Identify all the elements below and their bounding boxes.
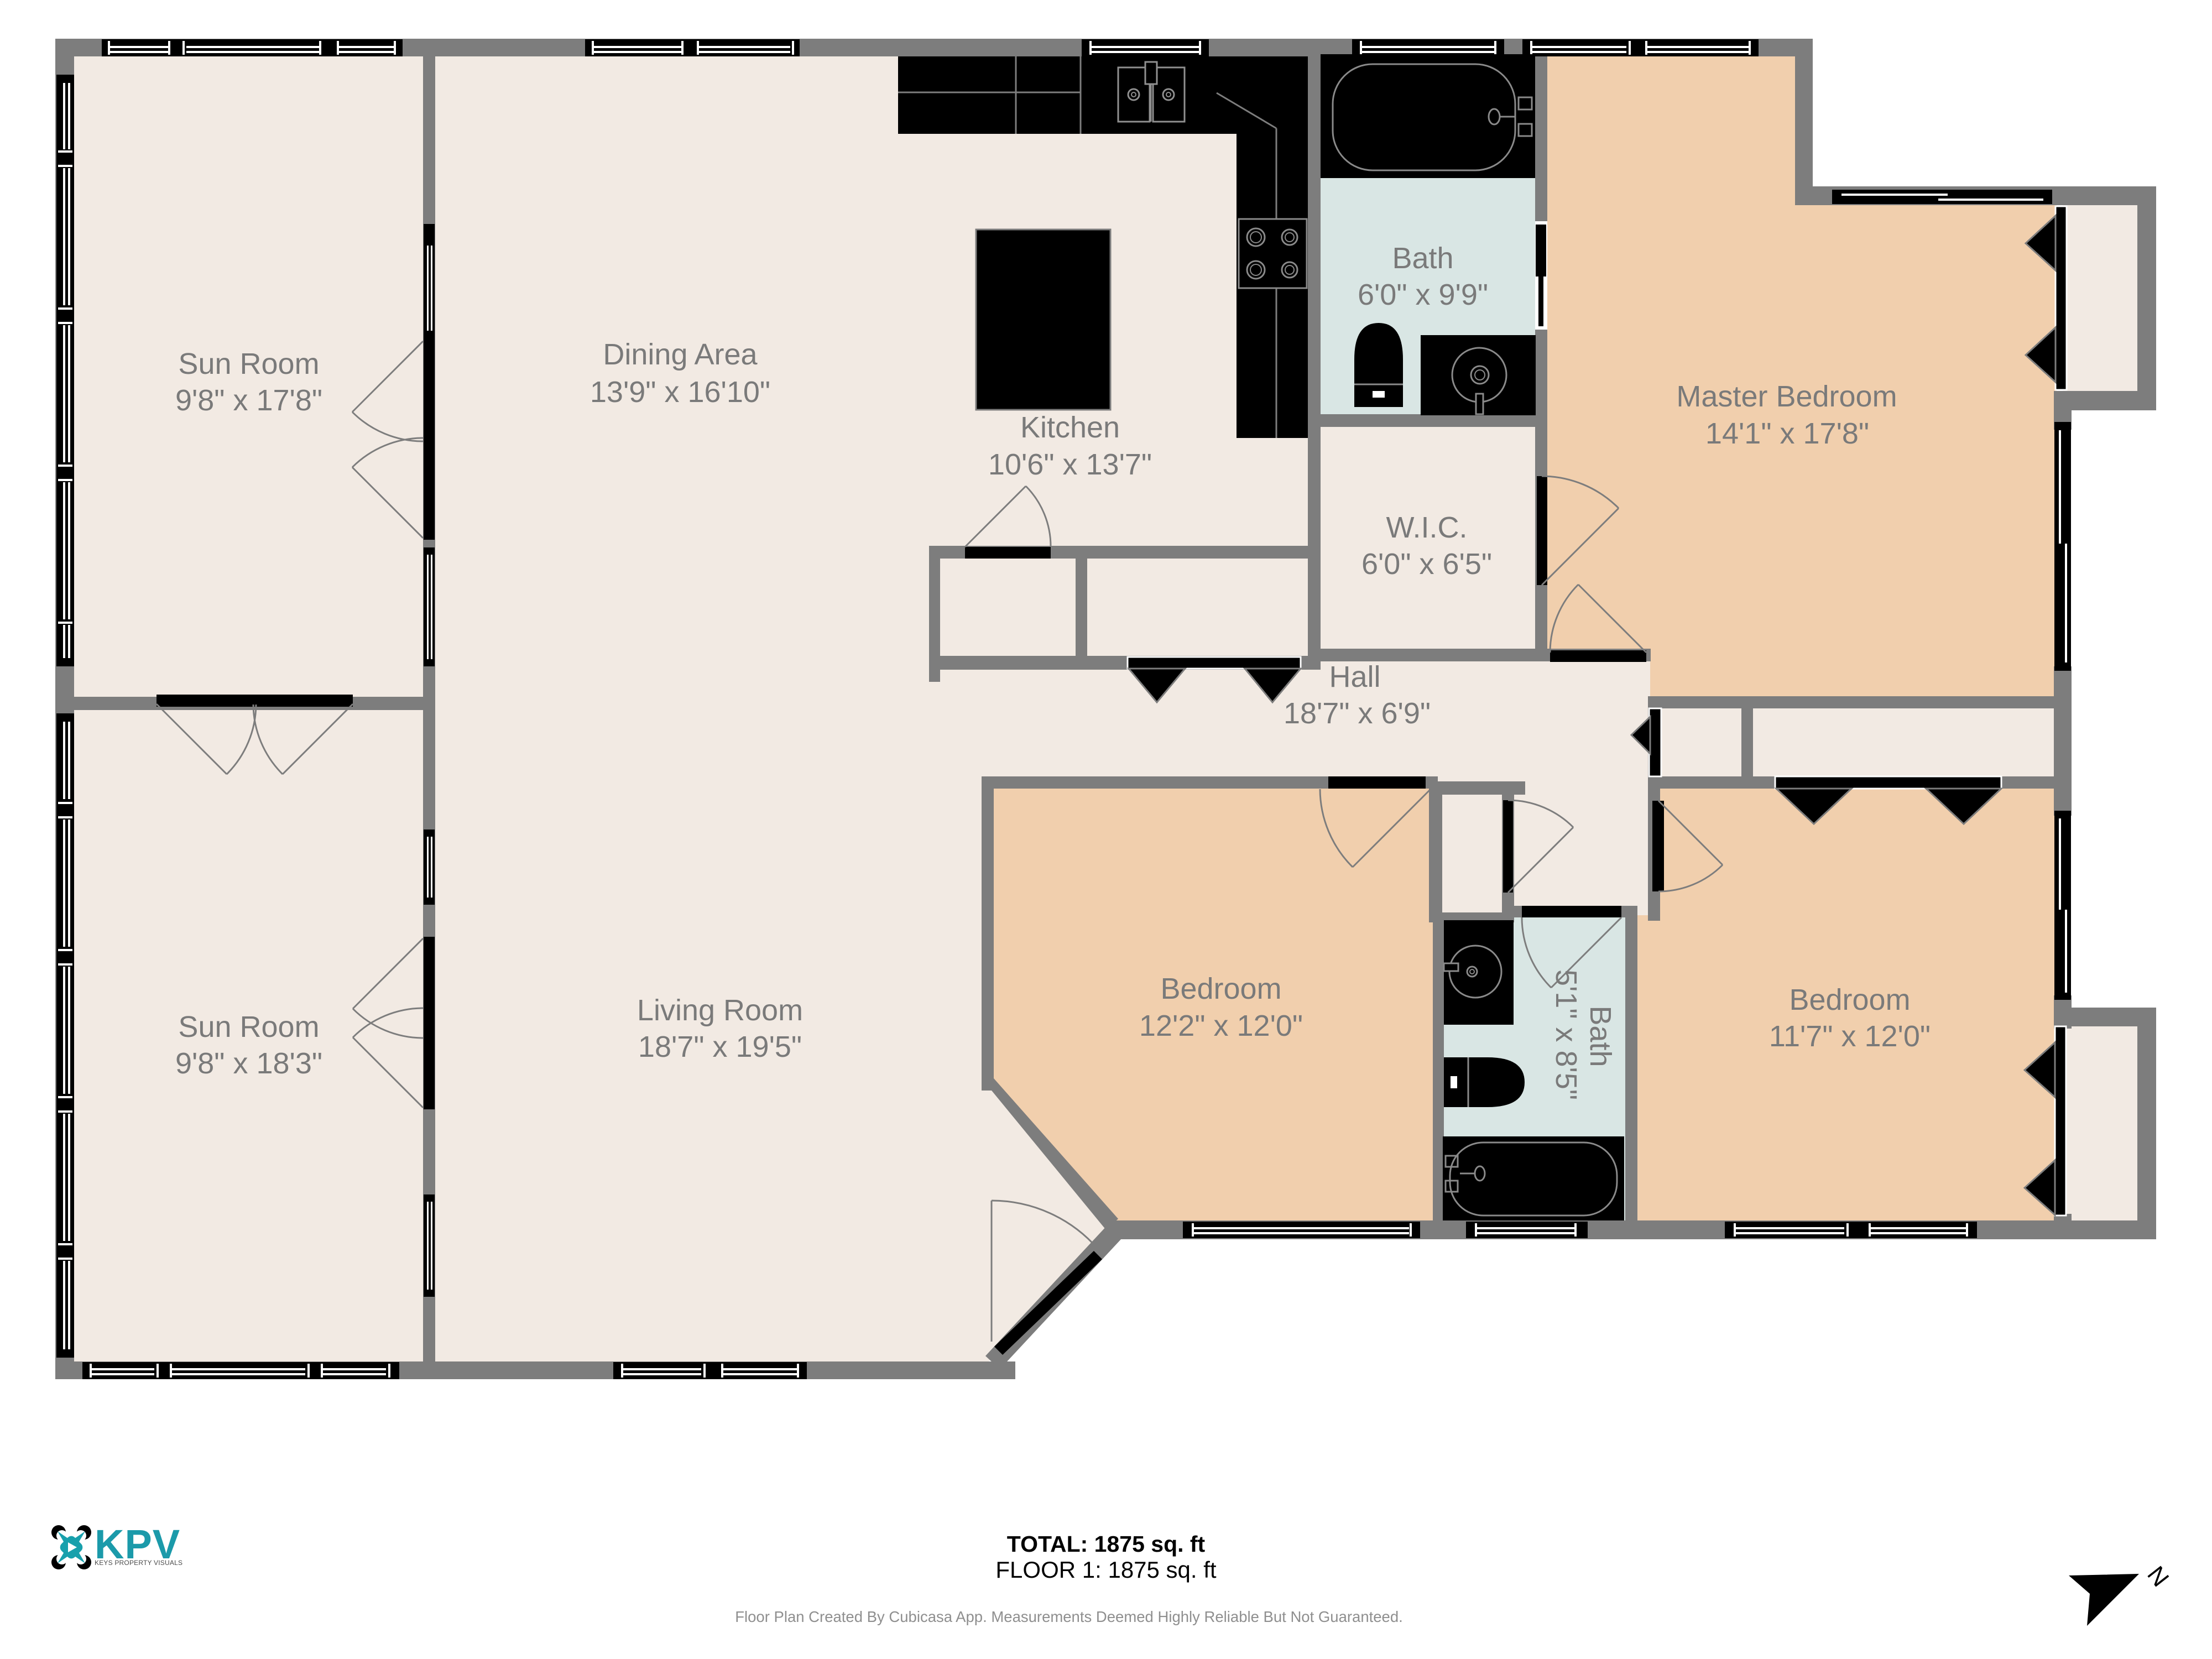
svg-text:Hall: Hall (1329, 660, 1380, 693)
svg-text:14'1" x 17'8": 14'1" x 17'8" (1705, 417, 1869, 450)
svg-text:Floor Plan Created By Cubicasa: Floor Plan Created By Cubicasa App. Meas… (735, 1608, 1403, 1625)
svg-text:12'2" x 12'0": 12'2" x 12'0" (1139, 1009, 1303, 1042)
svg-text:Dining Area: Dining Area (603, 338, 758, 371)
svg-text:Master Bedroom: Master Bedroom (1676, 380, 1897, 413)
svg-text:Bedroom: Bedroom (1160, 972, 1281, 1005)
svg-text:5'1" x 8'5": 5'1" x 8'5" (1550, 969, 1583, 1100)
svg-text:9'8" x 18'3": 9'8" x 18'3" (175, 1047, 322, 1080)
svg-text:Kitchen: Kitchen (1020, 411, 1120, 444)
svg-text:9'8" x 17'8": 9'8" x 17'8" (175, 384, 322, 417)
svg-text:W.I.C.: W.I.C. (1386, 511, 1468, 544)
svg-text:Bedroom: Bedroom (1789, 983, 1910, 1016)
svg-text:6'0" x 6'5": 6'0" x 6'5" (1361, 547, 1492, 581)
svg-text:FLOOR 1: 1875 sq. ft: FLOOR 1: 1875 sq. ft (995, 1557, 1217, 1583)
svg-text:KEYS PROPERTY VISUALS: KEYS PROPERTY VISUALS (95, 1559, 182, 1567)
svg-text:TOTAL: 1875 sq. ft: TOTAL: 1875 sq. ft (1007, 1531, 1206, 1557)
svg-text:6'0" x 9'9": 6'0" x 9'9" (1358, 278, 1488, 311)
svg-text:10'6" x 13'7": 10'6" x 13'7" (988, 448, 1152, 481)
svg-text:Living Room: Living Room (637, 994, 803, 1027)
svg-text:Bath: Bath (1392, 242, 1453, 275)
svg-text:11'7" x 12'0": 11'7" x 12'0" (1769, 1020, 1931, 1053)
svg-text:18'7" x 6'9": 18'7" x 6'9" (1284, 697, 1431, 730)
svg-text:Sun Room: Sun Room (178, 1010, 319, 1044)
svg-text:18'7" x 19'5": 18'7" x 19'5" (638, 1030, 802, 1063)
svg-text:Sun Room: Sun Room (178, 347, 319, 380)
svg-text:Bath: Bath (1584, 1005, 1617, 1067)
svg-text:13'9" x 16'10": 13'9" x 16'10" (590, 375, 770, 409)
